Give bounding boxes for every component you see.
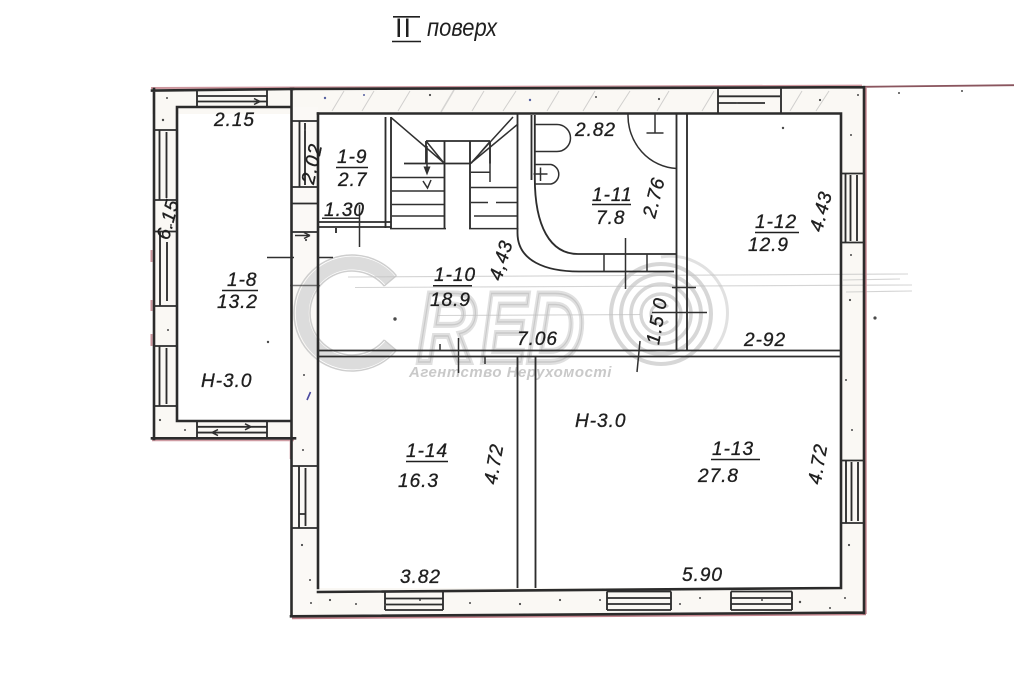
- svg-text:Агентство Нерухомості: Агентство Нерухомості: [408, 364, 612, 381]
- svg-text:1-14: 1-14: [406, 441, 448, 462]
- svg-text:2-92: 2-92: [743, 330, 786, 351]
- svg-text:18.9: 18.9: [430, 290, 471, 311]
- svg-text:1-8: 1-8: [227, 270, 257, 291]
- svg-text:7.06: 7.06: [517, 329, 558, 350]
- svg-text:1-10: 1-10: [434, 265, 476, 286]
- svg-text:2.7: 2.7: [337, 170, 368, 191]
- svg-text:27.8: 27.8: [697, 466, 739, 487]
- svg-text:1-9: 1-9: [337, 147, 367, 168]
- svg-text:1.30: 1.30: [324, 200, 365, 221]
- svg-text:12.9: 12.9: [748, 235, 789, 256]
- svg-text:1-11: 1-11: [592, 185, 633, 206]
- svg-text:3.82: 3.82: [400, 567, 441, 588]
- svg-text:7.8: 7.8: [596, 208, 625, 229]
- svg-text:13.2: 13.2: [217, 292, 258, 313]
- svg-text:2.15: 2.15: [213, 110, 255, 131]
- svg-text:1-13: 1-13: [712, 439, 754, 460]
- svg-text:2.82: 2.82: [574, 120, 616, 141]
- svg-text:Н-3.0: Н-3.0: [575, 411, 626, 432]
- svg-text:Н-3.0: Н-3.0: [201, 371, 252, 392]
- svg-text:16.3: 16.3: [398, 471, 439, 492]
- svg-text:5.90: 5.90: [682, 565, 723, 586]
- svg-text:поверх: поверх: [427, 14, 498, 42]
- svg-text:1-12: 1-12: [755, 212, 797, 233]
